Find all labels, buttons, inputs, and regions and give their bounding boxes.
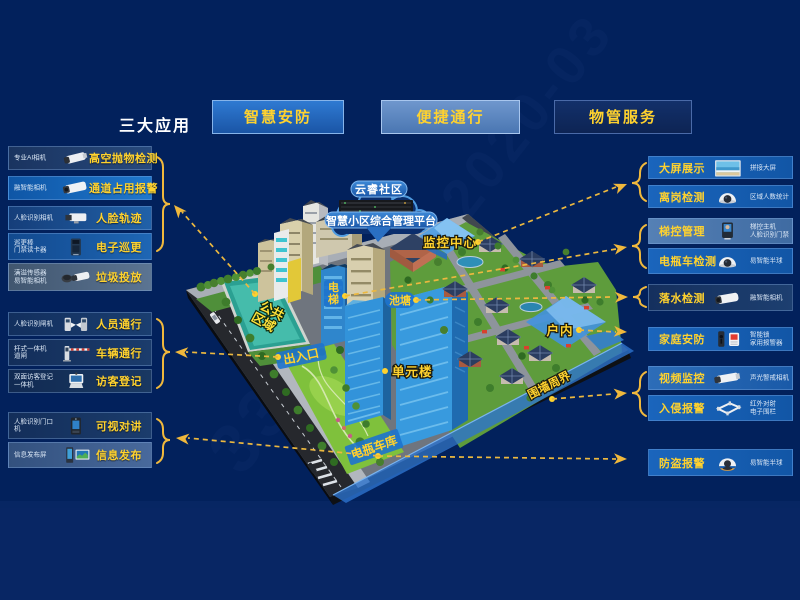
svg-text:电: 电: [328, 280, 339, 294]
svg-text:梯: 梯: [328, 292, 339, 306]
svg-text:智慧小区综合管理平台: 智慧小区综合管理平台: [326, 214, 436, 228]
svg-text:户内: 户内: [546, 323, 573, 338]
svg-text:监控中心: 监控中心: [423, 235, 477, 250]
svg-text:云睿社区: 云睿社区: [355, 182, 403, 196]
svg-text:池塘: 池塘: [389, 293, 411, 307]
svg-text:单元楼: 单元楼: [392, 364, 433, 379]
